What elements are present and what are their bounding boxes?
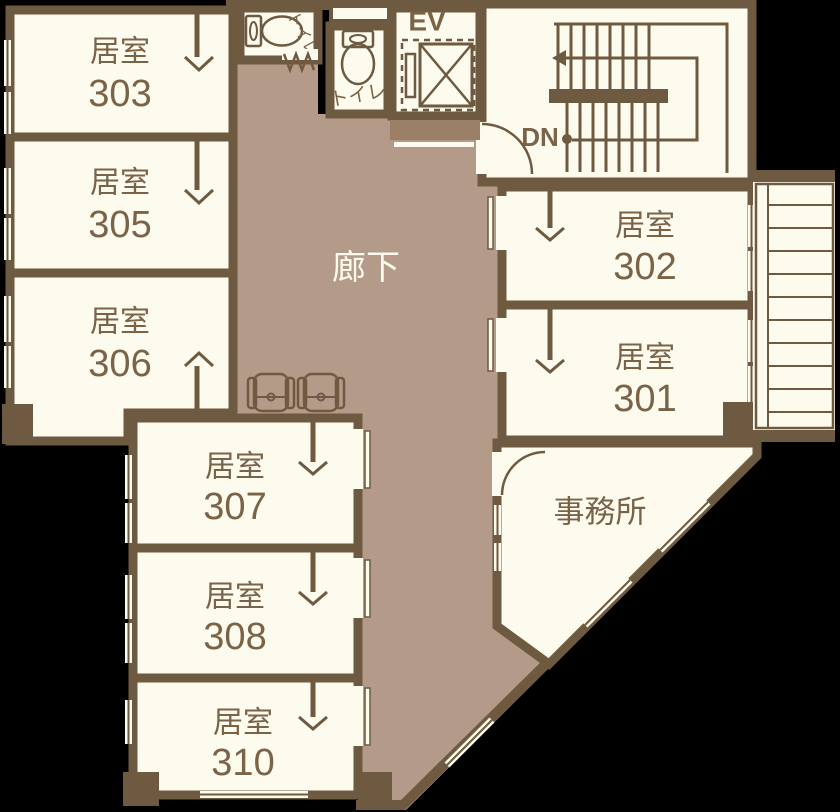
room-302-type: 居室 [615, 210, 675, 243]
wall-corner-block [2, 404, 33, 444]
shelf [331, 6, 389, 21]
corridor-label: 廊下 [332, 249, 400, 287]
room-305-type: 居室 [90, 167, 150, 200]
room-303-number: 303 [88, 73, 151, 115]
room-307-area: 居室 307 [133, 418, 358, 548]
room-306-number: 306 [88, 343, 151, 385]
elevator-area: EV [390, 6, 480, 148]
wall-corner-block [358, 772, 392, 808]
window-slit [4, 40, 11, 388]
room-305-number: 305 [88, 204, 151, 246]
stairs-down-label: DN [521, 122, 559, 152]
room-302-area: 居室 302 [502, 187, 752, 305]
room-307-type: 居室 [205, 451, 265, 484]
duct-block [723, 402, 749, 437]
door-opening [353, 429, 370, 746]
wall-corner-block [123, 772, 159, 806]
elevator-landing-mat [390, 120, 480, 140]
balcony-ladder-icon [753, 170, 835, 442]
room-307-number: 307 [203, 486, 266, 528]
room-301-type: 居室 [615, 342, 675, 375]
stair-hall-area: DN [476, 4, 752, 182]
room-303-type: 居室 [90, 36, 150, 69]
elevator-sill [394, 142, 474, 147]
room-301-number: 301 [613, 378, 676, 420]
room-303-area: 居室 303 [10, 10, 233, 137]
floor-plan-canvas: 居室 303 居室 305 居室 306 居室 [0, 0, 840, 812]
floor-plan-svg: 居室 303 居室 305 居室 306 居室 [0, 0, 840, 812]
elevator-label: EV [408, 6, 446, 37]
room-308-type: 居室 [205, 581, 265, 614]
room-305-area: 居室 305 [10, 137, 233, 273]
toilet-room-a: トイレ [240, 8, 321, 70]
room-310-area: 居室 310 [133, 678, 358, 795]
room-302-number: 302 [613, 246, 676, 288]
room-308-number: 308 [203, 616, 266, 658]
room-301-area: 居室 301 [502, 305, 752, 440]
toilet-room-b: トイレ [328, 6, 389, 114]
room-310-type: 居室 [213, 707, 273, 740]
room-306-type: 居室 [90, 306, 150, 339]
room-308-area: 居室 308 [133, 548, 358, 678]
office-area: 事務所 [492, 443, 757, 664]
office-label: 事務所 [554, 495, 647, 530]
room-310-number: 310 [211, 742, 274, 784]
